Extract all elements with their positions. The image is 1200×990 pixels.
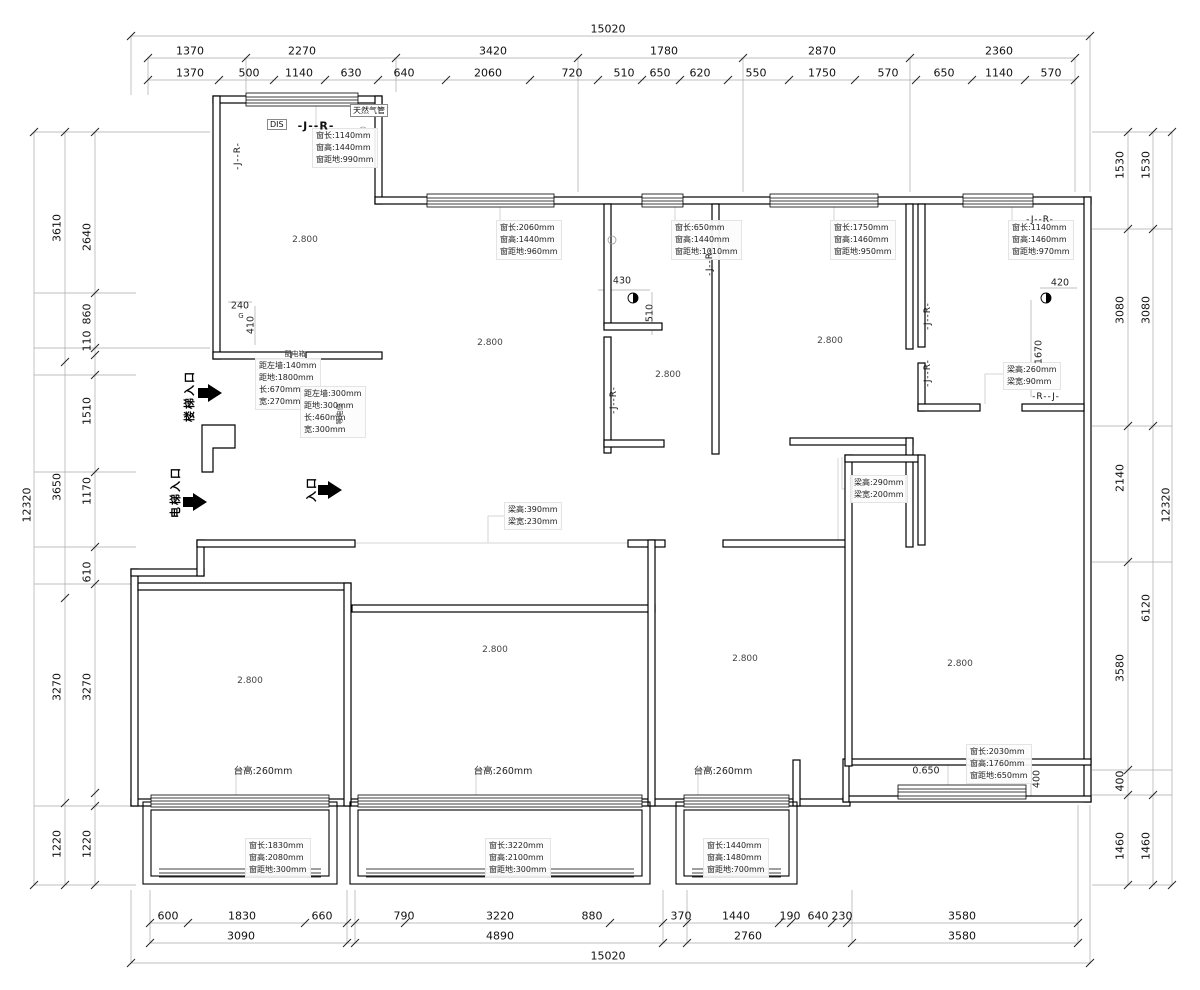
dim-label: 3090 bbox=[227, 930, 255, 943]
annotation-line: 窗长:2060mm bbox=[500, 222, 558, 234]
leb-label: 等电位 bbox=[335, 404, 345, 425]
annotation-line: 窗高:1460mm bbox=[1012, 234, 1070, 246]
dim-label: 570 bbox=[878, 67, 899, 80]
dim-label: 610 bbox=[81, 562, 94, 583]
walls bbox=[131, 96, 1091, 806]
dim-label: 1220 bbox=[51, 830, 64, 858]
dim-label: 3080 bbox=[1114, 296, 1127, 324]
beam-annotation: 梁高:390mm 梁宽:230mm bbox=[504, 502, 562, 530]
ceiling-height-label: 2.800 bbox=[477, 338, 503, 348]
dim-label: 2060 bbox=[474, 67, 502, 80]
ceiling-height-label: 2.800 bbox=[732, 654, 758, 664]
window-annotation: 窗长:3220mm 窗高:2100mm 窗距地:300mm bbox=[485, 838, 551, 878]
dim-label: 3580 bbox=[948, 930, 976, 943]
window-annotation: 窗长:1830mm 窗高:2080mm 窗距地:300mm bbox=[245, 838, 311, 878]
stair-entrance-label: 楼梯入口 bbox=[181, 370, 197, 422]
dim-label: 3610 bbox=[51, 214, 64, 242]
small-dim-label: 410 bbox=[246, 316, 257, 334]
dim-label: 720 bbox=[562, 67, 583, 80]
annotation-line: 窗距地:990mm bbox=[316, 154, 374, 166]
jr-label: -J--R- bbox=[923, 302, 933, 330]
annotation-line: 梁高:290mm bbox=[854, 477, 904, 489]
dim-label: 1830 bbox=[228, 910, 256, 923]
elevator-entrance-arrow-icon bbox=[183, 493, 207, 511]
small-dim-label: 420 bbox=[1051, 278, 1069, 289]
jr-label: -J--R- bbox=[705, 248, 715, 276]
dim-label: 370 bbox=[671, 910, 692, 923]
annotation-line: 窗高:1480mm bbox=[707, 852, 765, 864]
annotation-line: 窗高:1460mm bbox=[834, 234, 892, 246]
annotation-line: 窗距地:950mm bbox=[834, 246, 892, 258]
ceiling-light-icon bbox=[628, 293, 638, 303]
annotation-line: 窗高:2100mm bbox=[489, 852, 547, 864]
dim-label: 3080 bbox=[1140, 296, 1153, 324]
small-dim-label: 400 bbox=[1032, 770, 1043, 788]
annotation-line: 梁高:390mm bbox=[508, 504, 558, 516]
dim-label: 1460 bbox=[1114, 832, 1127, 860]
stair-entrance-arrow-icon bbox=[198, 384, 222, 402]
annotation-line: 梁宽:90mm bbox=[1007, 376, 1057, 388]
jr-label: -J--R- bbox=[1026, 215, 1054, 225]
dim-label: 790 bbox=[394, 910, 415, 923]
beam-annotation: 梁高:290mm 梁宽:200mm bbox=[850, 475, 908, 503]
dim-label: 570 bbox=[1041, 67, 1062, 80]
dim-label: 3420 bbox=[479, 45, 507, 58]
annotation-line: 窗距地:700mm bbox=[707, 864, 765, 876]
platform-height-label: 台高:260mm bbox=[474, 763, 533, 777]
annotation-line: 梁宽:230mm bbox=[508, 516, 558, 528]
window-annotation: 窗长:1750mm 窗高:1460mm 窗距地:950mm bbox=[830, 220, 896, 260]
dim-label: 230 bbox=[832, 910, 853, 923]
annotation-line: 窗距地:300mm bbox=[249, 864, 307, 876]
annotation-line: 窗长:3220mm bbox=[489, 840, 547, 852]
dim-label: 650 bbox=[650, 67, 671, 80]
dim-label: 3580 bbox=[1114, 654, 1127, 682]
gas-pipe-label: 天然气管 bbox=[350, 104, 388, 117]
dim-label: 880 bbox=[582, 910, 603, 923]
annotation-line: 梁高:260mm bbox=[1007, 364, 1057, 376]
ceiling-height-label: 2.800 bbox=[655, 370, 681, 380]
dim-label: 1370 bbox=[176, 45, 204, 58]
dim-label: 1530 bbox=[1114, 151, 1127, 179]
annotation-line: 宽:300mm bbox=[304, 424, 362, 436]
platform-height-label: 台高:260mm bbox=[694, 763, 753, 777]
rj-label: -R--J- bbox=[1032, 392, 1060, 402]
annotation-line: 距地:1800mm bbox=[259, 372, 317, 384]
entry-arrow-icon bbox=[318, 481, 342, 499]
floor-level-label: 0.650 bbox=[912, 766, 939, 777]
annotation-line: 窗高:1440mm bbox=[500, 234, 558, 246]
window-annotation: 窗长:1140mm 窗高:1460mm 窗距地:970mm bbox=[1008, 220, 1074, 260]
window-annotation: 窗长:1440mm 窗高:1480mm 窗距地:700mm bbox=[703, 838, 769, 878]
dim-label: 2640 bbox=[81, 223, 94, 251]
dim-label: 660 bbox=[312, 910, 333, 923]
dim-label: 500 bbox=[239, 67, 260, 80]
dim-label: 860 bbox=[81, 304, 94, 325]
ceiling-height-label: 2.800 bbox=[817, 336, 843, 346]
dim-label: 640 bbox=[394, 67, 415, 80]
dim-label: 650 bbox=[934, 67, 955, 80]
small-dim-label: 510 bbox=[645, 304, 656, 322]
dim-label: 3650 bbox=[51, 473, 64, 501]
annotation-line: 窗长:1750mm bbox=[834, 222, 892, 234]
dim-label: 3270 bbox=[81, 673, 94, 701]
dim-label: 2760 bbox=[734, 930, 762, 943]
dim-label: 1510 bbox=[81, 397, 94, 425]
annotation-line: 窗距地:300mm bbox=[489, 864, 547, 876]
annotation-line: 窗距地:970mm bbox=[1012, 246, 1070, 258]
dim-label: 15020 bbox=[591, 23, 626, 36]
entry-label: 入口 bbox=[303, 476, 319, 502]
dim-label: 620 bbox=[690, 67, 711, 80]
dim-label: 1780 bbox=[650, 45, 678, 58]
jr-label: -J--R- bbox=[609, 386, 619, 414]
annotation-line: 窗高:2080mm bbox=[249, 852, 307, 864]
beam-annotation: 梁高:260mm 梁宽:90mm bbox=[1003, 362, 1061, 390]
dim-label: 1530 bbox=[1140, 151, 1153, 179]
dim-label: 3270 bbox=[51, 673, 64, 701]
dimension-lines bbox=[34, 36, 1172, 963]
window-annotation: 窗长:2030mm 窗高:1760mm 窗距地:650mm bbox=[966, 744, 1032, 784]
dim-label: 1220 bbox=[81, 830, 94, 858]
annotation-line: 梁宽:200mm bbox=[854, 489, 904, 501]
annotation-line: 长:460mm bbox=[304, 412, 362, 424]
dim-label: 1140 bbox=[985, 67, 1013, 80]
annotation-line: 窗高:1760mm bbox=[970, 758, 1028, 770]
bay-windows bbox=[143, 802, 797, 884]
window-annotation: 窗长:2060mm 窗高:1440mm 窗距地:960mm bbox=[496, 220, 562, 260]
dim-label: 2360 bbox=[985, 45, 1013, 58]
dim-label: 2270 bbox=[288, 45, 316, 58]
annotation-line: 窗高:1440mm bbox=[316, 142, 374, 154]
annotation-line: 窗长:650mm bbox=[675, 222, 738, 234]
floor-plan: 15020 1370 2270 3420 1780 2870 2360 1370… bbox=[0, 0, 1200, 990]
annotation-line: 窗距地:960mm bbox=[500, 246, 558, 258]
dim-label: 550 bbox=[746, 67, 767, 80]
dim-label: 1440 bbox=[722, 910, 750, 923]
dim-label: 510 bbox=[614, 67, 635, 80]
dim-label: 2870 bbox=[808, 45, 836, 58]
elevator-entrance-label: 电梯入口 bbox=[167, 466, 183, 518]
ceiling-light-icon bbox=[1041, 293, 1051, 303]
small-dim-label: 1670 bbox=[1034, 340, 1045, 364]
ceiling-height-label: 2.800 bbox=[482, 645, 508, 655]
dim-label: 1170 bbox=[81, 477, 94, 505]
dim-label: 3220 bbox=[486, 910, 514, 923]
annotation-line: 距左墙:300mm bbox=[304, 388, 362, 400]
dim-label: 110 bbox=[81, 331, 94, 352]
ceiling-height-label: 2.800 bbox=[292, 235, 318, 245]
small-dim-label: 430 bbox=[613, 276, 631, 287]
annotation-line: 距地:300mm bbox=[304, 400, 362, 412]
dim-label: 640 bbox=[808, 910, 829, 923]
dim-label: 1460 bbox=[1140, 832, 1153, 860]
dim-label: 12320 bbox=[21, 488, 34, 523]
dim-label: 6120 bbox=[1140, 594, 1153, 622]
dim-label: 1750 bbox=[808, 67, 836, 80]
leb-annotation: 距左墙:300mm 距地:300mm 长:460mm 宽:300mm bbox=[300, 386, 366, 438]
jr-label: -J--R- bbox=[923, 359, 933, 387]
dim-label: 3580 bbox=[948, 910, 976, 923]
platform-height-label: 台高:260mm bbox=[234, 763, 293, 777]
dim-label: 1370 bbox=[176, 67, 204, 80]
dim-label: 600 bbox=[158, 910, 179, 923]
annotation-line: 距左墙:140mm bbox=[259, 360, 317, 372]
annotation-line: 窗长:1830mm bbox=[249, 840, 307, 852]
gas-point-mark: G bbox=[238, 312, 243, 320]
jr-label: -J--R- bbox=[233, 142, 243, 170]
dim-label: 630 bbox=[341, 67, 362, 80]
jr-label: -J--R- bbox=[298, 120, 335, 133]
dim-label: 15020 bbox=[591, 950, 626, 963]
dim-label: 12320 bbox=[1160, 488, 1173, 523]
lobby-wall-shape bbox=[202, 425, 235, 472]
dim-label: 400 bbox=[1114, 771, 1127, 792]
annotation-line: 窗长:1440mm bbox=[707, 840, 765, 852]
dim-label: 1140 bbox=[285, 67, 313, 80]
annotation-line: 窗距地:650mm bbox=[970, 770, 1028, 782]
dim-label: 2140 bbox=[1114, 464, 1127, 492]
annotation-line: 窗长:2030mm bbox=[970, 746, 1028, 758]
ceiling-height-label: 2.800 bbox=[237, 676, 263, 686]
annotation-line: 窗高:1440mm bbox=[675, 234, 738, 246]
window-annotation: 窗长:1140mm 窗高:1440mm 窗距地:990mm bbox=[312, 128, 378, 168]
dis-label: DIS bbox=[267, 119, 287, 130]
small-dim-label: 240 bbox=[231, 301, 249, 312]
dim-label: 4890 bbox=[486, 930, 514, 943]
dim-label: 190 bbox=[780, 910, 801, 923]
ceiling-height-label: 2.800 bbox=[947, 659, 973, 669]
